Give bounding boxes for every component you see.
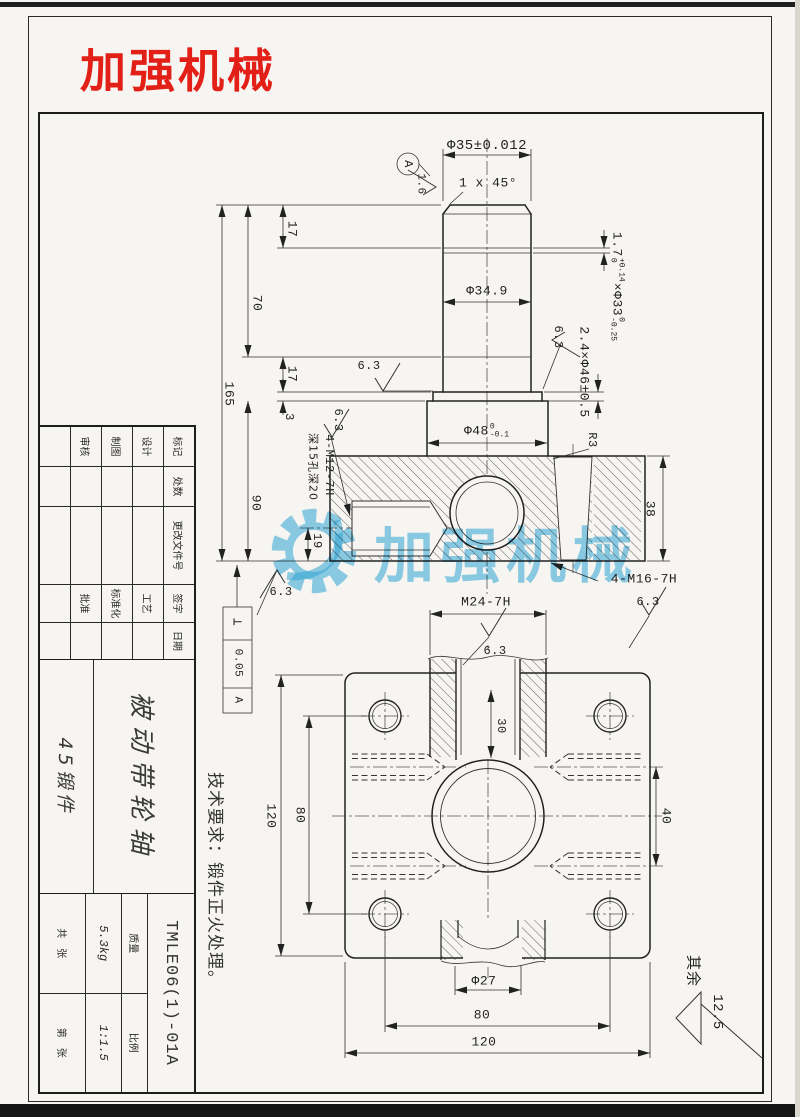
tb-row-design: 设计 (133, 427, 163, 467)
roughness-6-3-m16: 6.3 (636, 596, 659, 608)
scale-label: 比例 (122, 994, 147, 1093)
gdt-perpendicular-value: 0.05 (232, 649, 243, 677)
dim-chamfer: 1 x 45° (459, 177, 517, 190)
tb-row-process: 工艺 (133, 585, 163, 623)
tb-row-approve: 批准 (71, 585, 101, 623)
dim-left-80: 80 (294, 807, 307, 824)
drawing-number: TMLE06(1)-01A (148, 894, 194, 1092)
dim-dia-top: Φ35±0.012 (447, 139, 527, 153)
tb-header-signature: 签字 (164, 585, 194, 623)
dim-19: 19 (311, 533, 323, 548)
rest-surfaces-roughness: 12.5 (710, 994, 724, 1030)
tb-header-mark: 标记 (164, 427, 194, 467)
scan-edge-bottom (0, 1104, 800, 1117)
flange-face-view (345, 610, 650, 967)
tb-header-changefile: 更改文件号 (164, 507, 194, 585)
gdt-perpendicular-datum: A (232, 696, 243, 703)
dim-90: 90 (250, 495, 263, 512)
dim-thread-m16: 4-M16-7H (611, 573, 677, 586)
rest-surfaces-label: 其余 (686, 955, 701, 987)
roughness-6-3-m24: 6.3 (483, 645, 506, 657)
drawing-sheet: 加强机械 (0, 0, 800, 1117)
part-material: 45锻件 (40, 660, 94, 893)
gdt-perpendicular-symbol: ⊥ (231, 618, 244, 626)
roughness-1-6: 1.6 (415, 173, 426, 194)
dim-dia-collar: Φ480-0.1 (464, 424, 510, 439)
dim-17-top: 17 (286, 221, 299, 238)
part-name: 被动带轮轴 (94, 660, 194, 893)
scale-value: 1:1.5 (86, 994, 121, 1093)
roughness-6-3-face: 6.3 (269, 586, 292, 598)
title-block-name-area: 被动带轮轴 45锻件 (40, 660, 194, 894)
roughness-6-3-groove: 6.3 (552, 325, 564, 348)
dim-30: 30 (495, 718, 507, 733)
tb-row-check: 审核 (71, 427, 101, 467)
mass-label: 质量 (122, 894, 147, 994)
roughness-6-3-m12: 6.3 (332, 408, 344, 431)
dim-groove-phi46: 2.4×Φ46±0.5 (578, 326, 591, 417)
dim-right-40: 40 (660, 808, 673, 825)
datum-label: A (402, 160, 414, 168)
dim-17-lower: 17 (286, 366, 299, 383)
dim-3: 3 (283, 413, 295, 421)
technical-requirements: 技术要求：锻件正火处理。 (206, 772, 223, 988)
tb-header-count: 处数 (164, 467, 194, 507)
dim-bottom-120: 120 (472, 1036, 497, 1049)
dim-38: 38 (644, 501, 657, 518)
title-block-revision-grid: 标记 处数 更改文件号 签字 日期 设计 工艺 制图 标准化 审 (40, 427, 194, 660)
title-block: 标记 处数 更改文件号 签字 日期 设计 工艺 制图 标准化 审 (38, 425, 196, 1094)
sheet-number: 第 张 (40, 994, 85, 1093)
dim-groove-phi33: 1.7+0.140×Φ330-0.25 (610, 232, 625, 342)
dim-dia-mid: Φ34.9 (466, 285, 508, 298)
roughness-6-3-relief: 6.3 (357, 360, 380, 372)
dim-thread-m24: M24-7H (461, 596, 511, 609)
tb-row-standardization: 标准化 (102, 585, 132, 623)
tb-row-draft: 制图 (102, 427, 132, 467)
scan-edge-right (795, 0, 800, 1117)
mass-value: 5.3kg (86, 894, 121, 994)
dim-fillet-r3: R3 (586, 432, 598, 447)
dim-left-120: 120 (265, 804, 278, 829)
tb-header-date: 日期 (164, 623, 194, 659)
dim-dia-27: Φ27 (472, 975, 497, 988)
dim-165: 165 (223, 382, 236, 407)
title-block-number-area: TMLE06(1)-01A 质量 比例 5.3kg 1:1.5 共 张 第 张 (40, 894, 194, 1092)
dim-thread-m12: 4-M12-7H (323, 434, 335, 496)
sheet-total: 共 张 (40, 894, 85, 994)
dim-thread-m12-depth: 深15孔深20 (308, 433, 319, 501)
dim-70: 70 (251, 295, 264, 312)
dim-bottom-80: 80 (474, 1009, 491, 1022)
